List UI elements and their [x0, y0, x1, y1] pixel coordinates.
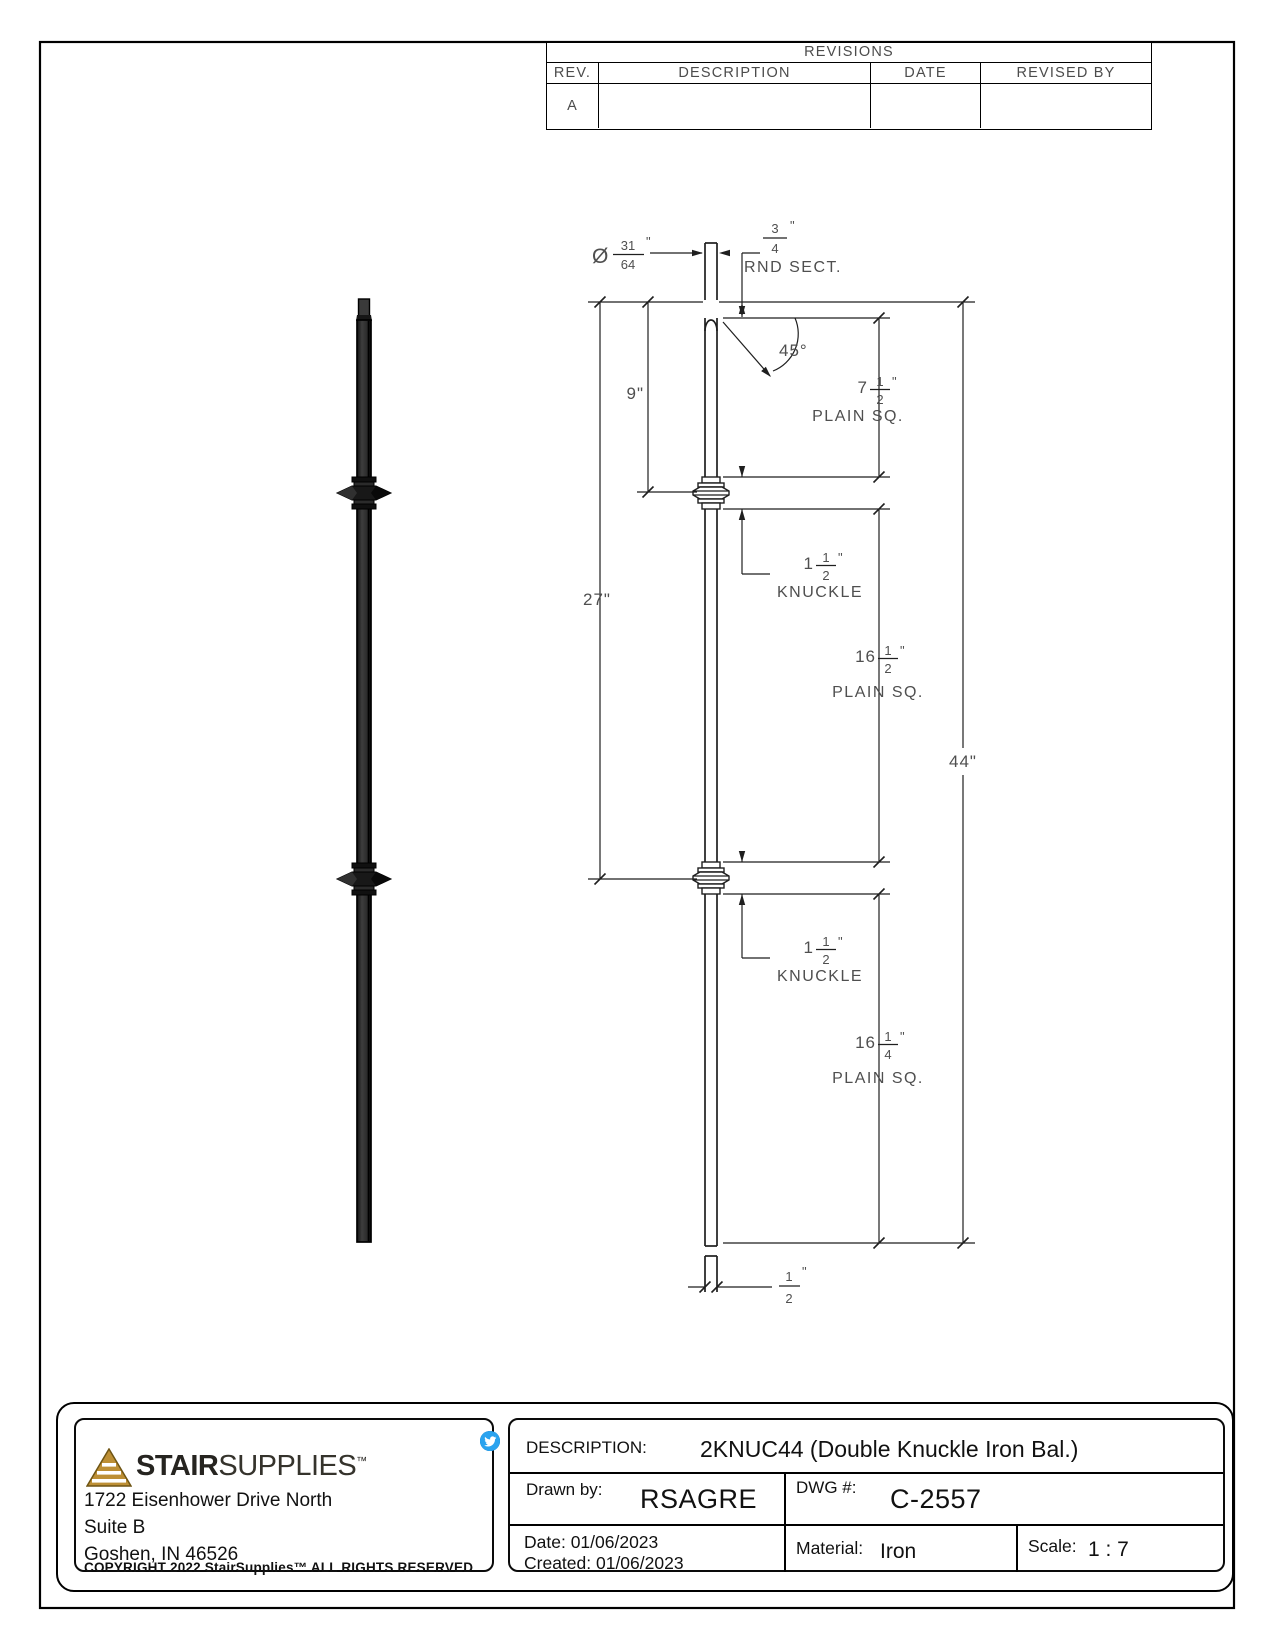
drawn-by-value: RSAGRE: [640, 1484, 757, 1515]
svg-text:1: 1: [804, 938, 814, 957]
dim-knuckle-upper: 1 1 2 " KNUCKLE: [777, 550, 863, 601]
svg-text:PLAIN SQ.: PLAIN SQ.: [832, 684, 924, 701]
dim-bar-width: 1 2 ": [779, 1264, 807, 1306]
revision-date-value: [871, 84, 981, 128]
stairsupplies-logo-icon: [86, 1448, 132, 1488]
stairsupplies-wordmark: STAIRSUPPLIES™: [136, 1450, 367, 1483]
svg-text:1: 1: [785, 1269, 792, 1284]
dim-round-section: 3 4 " RND SECT.: [744, 218, 842, 276]
svg-text:64: 64: [621, 257, 635, 272]
brand-tm: ™: [356, 1455, 367, 1467]
svg-text:": ": [900, 643, 905, 658]
drawn-by-label: Drawn by:: [526, 1480, 603, 1500]
description-label: DESCRIPTION:: [526, 1438, 647, 1458]
svg-text:2: 2: [822, 952, 829, 967]
svg-text:": ": [892, 374, 897, 389]
svg-text:1: 1: [884, 1029, 891, 1044]
scale-label: Scale:: [1028, 1536, 1077, 1557]
revisions-col-date: DATE: [871, 63, 981, 83]
svg-text:RND SECT.: RND SECT.: [744, 259, 842, 276]
baluster-knuckle-upper: [337, 477, 391, 509]
dim-9in: 9": [627, 384, 645, 403]
svg-text:2: 2: [785, 1291, 792, 1306]
drawing-knuckle-upper: [693, 477, 729, 509]
svg-text:16: 16: [855, 1033, 876, 1052]
revisions-col-rev: REV.: [547, 63, 599, 83]
svg-text:KNUCKLE: KNUCKLE: [777, 968, 863, 985]
scale-value: 1 : 7: [1088, 1538, 1129, 1562]
divider: [510, 1524, 1223, 1526]
svg-text:": ": [646, 234, 651, 249]
revisions-row: A: [547, 84, 1151, 128]
dim-27in: 27": [583, 590, 611, 609]
svg-text:1: 1: [876, 374, 883, 389]
svg-text:PLAIN SQ.: PLAIN SQ.: [812, 408, 904, 425]
dwg-number-value: C-2557: [890, 1484, 982, 1515]
drawing-knuckle-lower: [693, 862, 729, 894]
baluster-drawing: [588, 243, 975, 1293]
revisions-table: REVISIONS REV. DESCRIPTION DATE REVISED …: [546, 42, 1152, 130]
material-label: Material:: [796, 1538, 863, 1559]
address-line-2: Suite B: [84, 1517, 145, 1539]
created-field: Created: 01/06/2023: [524, 1553, 684, 1574]
dim-plain-sq-bottom: 16 1 4 " PLAIN SQ.: [832, 1029, 924, 1087]
svg-text:3: 3: [771, 221, 778, 236]
drawing-info-block: DESCRIPTION: 2KNUC44 (Double Knuckle Iro…: [508, 1418, 1225, 1572]
svg-text:1: 1: [884, 643, 891, 658]
revisions-title: REVISIONS: [547, 43, 1151, 63]
description-value: 2KNUC44 (Double Knuckle Iron Bal.): [700, 1436, 1078, 1463]
svg-text:7: 7: [858, 378, 868, 397]
dim-plain-sq-top: 7 1 2 " PLAIN SQ.: [812, 374, 904, 425]
svg-text:Ø: Ø: [592, 245, 609, 268]
dimension-labels: Ø 31 64 " 3 4 " RND SECT. 45° 9" 27" 44"…: [583, 218, 977, 1306]
revision-revised-by-value: [981, 84, 1151, 128]
dim-plain-sq-mid: 16 1 2 " PLAIN SQ.: [832, 643, 924, 701]
svg-text:2: 2: [822, 568, 829, 583]
date-field: Date: 01/06/2023: [524, 1532, 658, 1553]
baluster-illustration: [337, 299, 391, 1242]
baluster-knuckle-lower: [337, 863, 391, 895]
address-line-1: 1722 Eisenhower Drive North: [84, 1490, 332, 1512]
svg-text:": ": [838, 550, 843, 565]
divider: [784, 1524, 786, 1572]
svg-text:1: 1: [822, 550, 829, 565]
revision-rev-value: A: [547, 84, 599, 128]
svg-text:PLAIN SQ.: PLAIN SQ.: [832, 1070, 924, 1087]
svg-text:": ": [838, 934, 843, 949]
divider: [510, 1472, 1223, 1474]
dim-knuckle-lower: 1 1 2 " KNUCKLE: [777, 934, 863, 985]
drawing-sheet: Ø 31 64 " 3 4 " RND SECT. 45° 9" 27" 44"…: [0, 0, 1275, 1650]
divider: [784, 1472, 786, 1524]
svg-text:16: 16: [855, 647, 876, 666]
twitter-icon[interactable]: [480, 1431, 500, 1451]
copyright-text: COPYRIGHT 2022 StairSupplies™ ALL RIGHTS…: [84, 1560, 473, 1575]
svg-text:1: 1: [804, 554, 814, 573]
svg-text:": ": [790, 218, 795, 233]
svg-text:KNUCKLE: KNUCKLE: [777, 584, 863, 601]
svg-text:1: 1: [822, 934, 829, 949]
dim-44in: 44": [949, 752, 977, 771]
svg-text:31: 31: [621, 238, 635, 253]
svg-text:2: 2: [876, 392, 883, 407]
baluster-round-top: [359, 299, 370, 316]
revisions-header-row: REV. DESCRIPTION DATE REVISED BY: [547, 63, 1151, 84]
page-border: [40, 42, 1234, 1608]
company-block: STAIRSUPPLIES™ f in 1722 Eisenhower Driv…: [74, 1418, 494, 1572]
dim-diameter: Ø 31 64 ": [592, 234, 651, 272]
brand-light: SUPPLIES: [218, 1450, 356, 1482]
svg-text:4: 4: [771, 241, 778, 256]
revisions-col-description: DESCRIPTION: [599, 63, 871, 83]
revision-description-value: [599, 84, 871, 128]
svg-text:4: 4: [884, 1047, 891, 1062]
dim-angle: 45°: [779, 341, 808, 360]
material-value: Iron: [880, 1540, 916, 1564]
divider: [1016, 1524, 1018, 1572]
dwg-number-label: DWG #:: [796, 1478, 856, 1498]
svg-text:": ": [900, 1029, 905, 1044]
svg-text:2: 2: [884, 661, 891, 676]
revisions-col-revised-by: REVISED BY: [981, 63, 1151, 83]
svg-text:": ": [802, 1264, 807, 1279]
brand-bold: STAIR: [136, 1450, 218, 1482]
